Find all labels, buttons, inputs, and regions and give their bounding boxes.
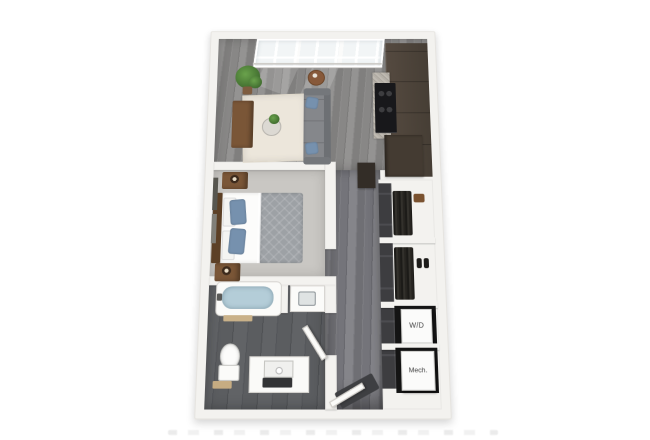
bar-console	[357, 163, 375, 188]
sofa-armrest	[304, 88, 331, 95]
vanity-faucet	[275, 367, 283, 375]
hanging-clothes	[394, 247, 415, 299]
bed-pillow-blue	[229, 199, 246, 225]
kitchen-island	[384, 135, 423, 177]
hanging-clothes	[392, 191, 412, 235]
throw-pillow	[305, 96, 320, 109]
bath-mat	[223, 315, 252, 321]
bed-blanket	[259, 193, 303, 263]
wall-bathroom-hall-upper	[325, 285, 336, 313]
apartment-unit: W/D Mech.	[194, 31, 452, 419]
washer-dryer-unit: W/D	[401, 309, 433, 344]
side-table-decor	[313, 73, 318, 77]
floor-plan-render: W/D Mech.	[0, 0, 650, 440]
cooktop	[375, 83, 397, 133]
throw-pillow	[305, 142, 319, 156]
vanity-sink-tray	[262, 378, 292, 388]
closet-column: W/D Mech.	[378, 180, 441, 410]
shoe	[417, 258, 422, 268]
wall-bedroom-hall	[325, 162, 336, 249]
toilet-step-tray	[212, 381, 231, 389]
shoe	[424, 258, 429, 268]
sink-basin	[298, 291, 316, 305]
bathtub-water	[222, 286, 274, 309]
sofa-armrest	[303, 157, 331, 164]
window-sill	[253, 63, 382, 65]
bed-pillow-blue	[228, 228, 247, 255]
storage-bag	[413, 194, 424, 203]
toilet-tank	[218, 365, 240, 381]
mechanical-closet-unit: Mech.	[401, 351, 436, 391]
tub-faucet	[217, 294, 222, 301]
closet-shelf	[380, 237, 436, 243]
cropped-caption-text	[168, 430, 498, 435]
mechanical-label: Mech.	[409, 367, 428, 375]
plant-pot	[243, 87, 253, 95]
sofa-back-cushions	[324, 89, 331, 163]
washer-dryer-label: W/D	[409, 322, 424, 329]
round-side-table	[308, 70, 325, 86]
media-console	[231, 101, 254, 148]
